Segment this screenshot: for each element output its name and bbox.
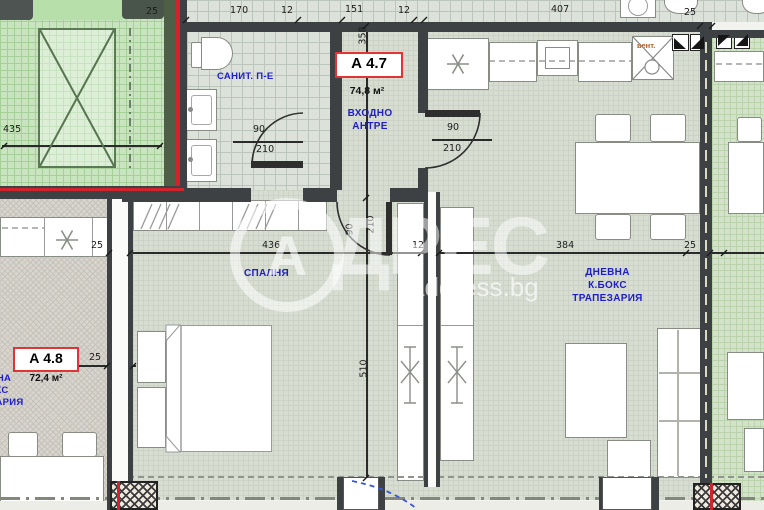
dim-line-green-435: [2, 145, 162, 147]
nightstand-2: [137, 387, 166, 448]
right-apt-chair: [737, 117, 762, 142]
floor-plan: 25 170 12 151 12 407 25 435 358 510 25 4…: [0, 0, 764, 510]
rug-coffee-table: [565, 343, 627, 438]
side-table: [607, 440, 651, 478]
room-label-a48-living: ДНЕВНА К.БОКС ТРАПЕЗАРИЯ: [0, 373, 60, 409]
dim-bath-door-210: 210: [256, 144, 274, 155]
unit-badge-a48: А 4.8: [13, 347, 79, 372]
room-label-living-line3: ТРАПЕЗАРИЯ: [545, 292, 670, 305]
wall-top-main: [187, 22, 712, 32]
dim-green-435: 435: [3, 124, 21, 135]
wardrobe-top-divider-2: [199, 201, 200, 230]
bed: [166, 325, 272, 452]
column-right-red-line: [710, 483, 713, 510]
dim-mid-384: 384: [556, 240, 574, 251]
wall-bedroom-top-seg3: [390, 188, 428, 202]
vent-label: вент.: [637, 41, 655, 50]
column-left-red-line: [117, 481, 120, 510]
room-label-bathroom: САНИТ. П-Е: [217, 71, 274, 82]
washbasin-bowl-1: [191, 95, 212, 125]
room-label-hall-line2: АНТРЕ: [332, 120, 408, 133]
common-dark-block-left: [0, 0, 33, 20]
dim-mid-25-left: 25: [91, 240, 103, 251]
column-right: [693, 483, 741, 510]
right-apt-counter: [714, 51, 764, 82]
dim-line-bath-door: [233, 141, 303, 143]
tap-2: [188, 157, 193, 162]
room-label-a48-line1: ДНЕВНА: [0, 373, 60, 385]
dim-hall-door-90: 90: [447, 122, 459, 133]
wall-hall-right-upper: [418, 32, 428, 113]
wardrobe-bedroom-shelf: [398, 325, 423, 326]
unit-badge-a47: А 4.7: [335, 52, 403, 78]
wardrobe-top-divider-5: [298, 201, 299, 230]
property-line-red-horizontal: [0, 188, 184, 191]
room-label-a48-line2: К.БОКС: [0, 385, 60, 397]
dim-bath-door-90: 90: [253, 124, 265, 135]
dim-bedroom-door-210: 210: [366, 210, 377, 240]
dim-hall-door-210: 210: [443, 143, 461, 154]
dining-chair-1: [595, 114, 631, 142]
dim-top-25-right: 25: [684, 7, 696, 18]
right-apt-table: [728, 142, 764, 214]
wall-top-right-apartment: [712, 30, 764, 38]
kitchen-counter-2: [578, 42, 632, 82]
dim-mid-12: 12: [412, 240, 424, 251]
kitchen-counter-1: [489, 42, 537, 82]
common-dark-strip: [164, 0, 176, 196]
dim-mid-25-right: 25: [684, 240, 696, 251]
wardrobe-living-tall: [440, 207, 474, 461]
unit-area-a47: 74,8 м²: [333, 85, 401, 97]
dim-bedroom-door-90: 90: [345, 218, 356, 242]
dim-top-25-left: 25: [146, 6, 158, 17]
wall-bathroom-left: [180, 0, 187, 193]
room-label-living-line2: К.БОКС: [545, 279, 670, 292]
elevator-shaft: [38, 28, 116, 168]
washbasin-bowl-2: [191, 145, 212, 176]
sofa-divider-h1: [659, 372, 701, 374]
dining-chair-4: [650, 214, 686, 240]
room-label-hall: ВХОДНО АНТРЕ: [332, 107, 408, 133]
wardrobe-living-shelf: [441, 325, 473, 326]
nightstand-1: [137, 331, 166, 383]
window-jamb-4: [651, 477, 659, 510]
wall-bedroom-top-seg2: [303, 188, 337, 202]
wardrobe-top-divider-4: [265, 201, 266, 230]
dim-line-hall-door: [432, 139, 492, 141]
dim-top-170: 170: [230, 5, 248, 16]
toilet-bowl: [201, 37, 233, 70]
room-label-a48-line3: ТРАПЕЗАРИЯ: [0, 397, 60, 409]
dim-top-12-a: 12: [281, 5, 293, 16]
dim-mid-436: 436: [262, 240, 280, 251]
tap-1: [188, 107, 193, 112]
right-apt-sofa: [727, 352, 764, 420]
dining-table: [575, 142, 700, 214]
dining-chair-3: [595, 214, 631, 240]
dining-chair-2: [650, 114, 686, 142]
room-label-living-line1: ДНЕВНА: [545, 266, 670, 279]
a48-counter-divider-1: [44, 218, 45, 256]
sofa-divider-v: [677, 330, 679, 476]
dim-top-12-b: 12: [398, 5, 410, 16]
dim-a48-wall-25: 25: [89, 352, 101, 363]
shaft-marker-sq1: [672, 34, 689, 51]
dim-hall-358: 358: [358, 21, 369, 51]
bed-headboard-line: [180, 326, 182, 451]
stove-inner: [545, 47, 570, 69]
sofa: [657, 328, 703, 478]
room-label-bedroom: СПАЛНЯ: [244, 268, 289, 279]
wardrobe-top-divider-3: [232, 201, 233, 230]
room-label-hall-line1: ВХОДНО: [332, 107, 408, 120]
balcony-dashed-line: [128, 476, 764, 478]
dim-top-151: 151: [345, 4, 363, 15]
balcony-door-frame-right: [602, 477, 652, 510]
a48-chair-1: [8, 432, 38, 457]
right-apt-furniture: [744, 428, 764, 472]
sofa-divider-h2: [659, 420, 701, 422]
balcony-door-frame-left: [343, 477, 379, 510]
wall-wardrobe-line2: [436, 192, 440, 487]
dim-bedroom-510: 510: [359, 352, 370, 386]
wardrobe-top-divider-1: [166, 201, 167, 230]
wall-party-left-line2: [128, 196, 133, 482]
a48-chair-2: [62, 432, 97, 457]
room-label-living: ДНЕВНА К.БОКС ТРАПЕЗАРИЯ: [545, 266, 670, 305]
dim-top-407: 407: [551, 4, 569, 15]
wall-party-left-line1: [107, 196, 112, 510]
wall-party-right: [700, 30, 712, 487]
fridge: [427, 38, 489, 90]
common-light-band: [33, 0, 123, 20]
wall-wardrobe-line1: [424, 192, 428, 487]
